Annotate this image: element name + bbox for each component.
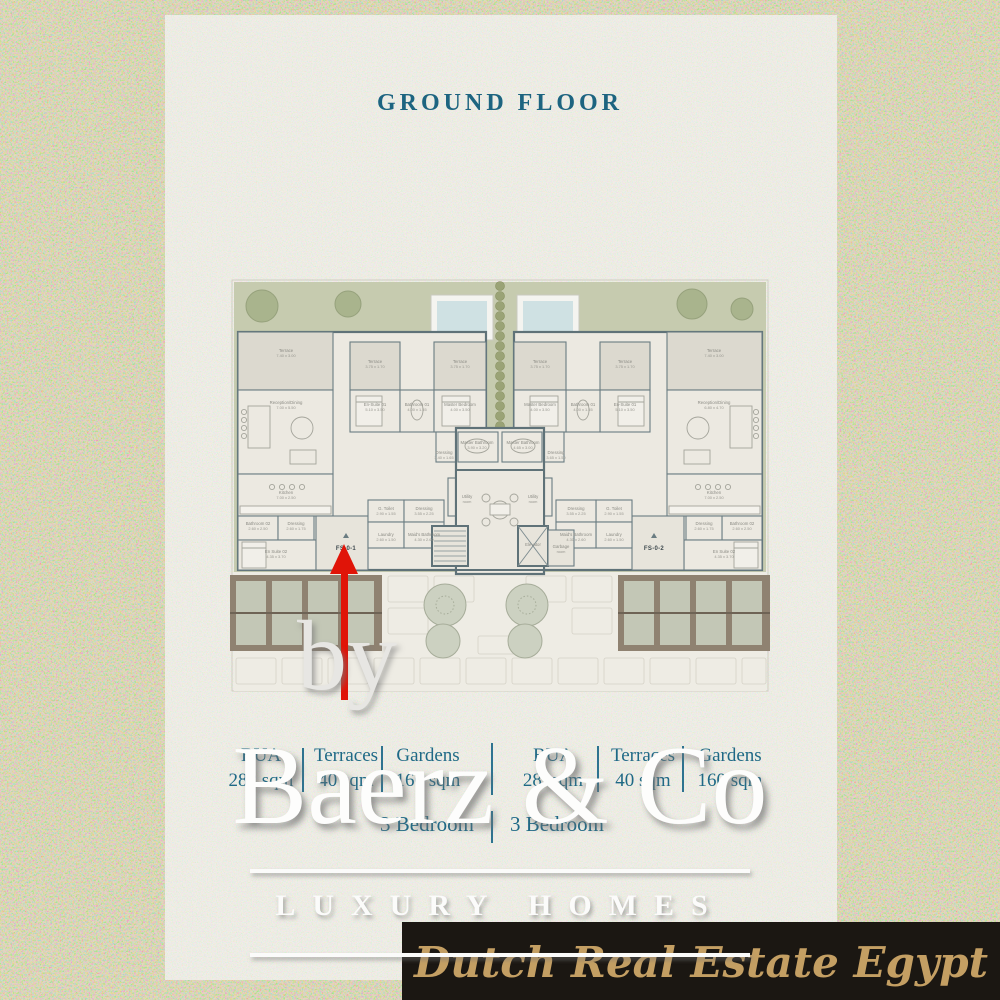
room-label: Utilityroom — [528, 494, 539, 504]
room-label: Bathroom 014.00 x 1.55 — [405, 402, 430, 412]
room-label: Bathroom 014.00 x 1.55 — [571, 402, 596, 412]
room-label: Bathroom 022.60 x 2.50 — [730, 521, 755, 531]
room-label: Dressing3.55 x 2.25 — [566, 506, 585, 516]
brand-rule-top — [250, 869, 750, 873]
room-label: G. Toilet2.90 x 1.55 — [376, 506, 395, 516]
brand-rule-bottom — [250, 953, 750, 957]
room-label: Dressing2.60 x 1.75 — [694, 521, 713, 531]
watermark-by: by — [297, 598, 397, 713]
room-label: En-Suite 015.10 x 3.50 — [364, 402, 387, 412]
room-label: Laundry2.60 x 1.50 — [604, 532, 624, 542]
page-title: GROUND FLOOR — [0, 90, 1000, 117]
room-label: Elevator — [525, 542, 541, 547]
room-label: En Suite 024.35 x 3.70 — [265, 549, 288, 559]
watermark-brand: Baerz & Co — [0, 722, 1000, 851]
listing-image: GROUND FLOOR — [0, 0, 1000, 1000]
center-hedge — [496, 282, 505, 431]
room-label: Bathroom 022.60 x 2.50 — [246, 521, 271, 531]
agency-name: Dutch Real Estate Egypt — [402, 938, 1000, 987]
unit-tag-fs-0-2: FS-0-2 — [644, 546, 664, 552]
room-label: En-Suite 015.10 x 3.50 — [614, 402, 637, 412]
room-label: Dressing3.40 x 1.65 — [434, 450, 453, 460]
room-label: En Suite 024.35 x 3.70 — [713, 549, 736, 559]
watermark-tagline: LUXURY HOMES — [0, 889, 1000, 923]
room-label: Dressing3.65 x 1.50 — [546, 450, 566, 460]
room-label: Laundry2.60 x 1.50 — [376, 532, 396, 542]
room-label: Dressing3.55 x 2.25 — [414, 506, 433, 516]
room-label: Dressing2.60 x 1.75 — [286, 521, 305, 531]
annotation-arrow-head — [330, 544, 358, 574]
room-label: Utilityroom — [462, 494, 473, 504]
room-label: G. Toilet2.90 x 1.55 — [604, 506, 623, 516]
